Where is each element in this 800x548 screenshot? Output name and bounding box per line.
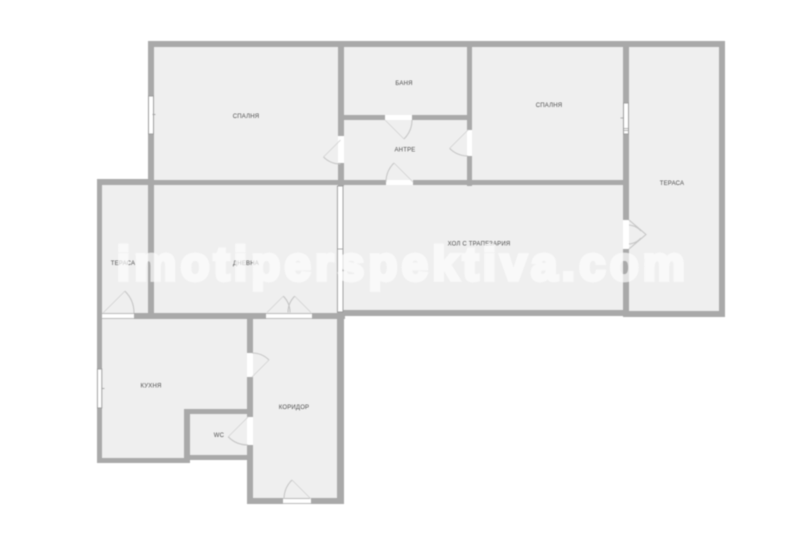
svg-text:СПАЛНЯ: СПАЛНЯ	[536, 103, 563, 109]
svg-text:КОРИДОР: КОРИДОР	[279, 405, 310, 411]
svg-text:ТЕРАСА: ТЕРАСА	[660, 181, 685, 187]
svg-text:АНТРЕ: АНТРЕ	[394, 148, 415, 154]
svg-text:КУХНЯ: КУХНЯ	[140, 384, 161, 390]
svg-text:БАНЯ: БАНЯ	[395, 81, 412, 87]
svg-text:СПАЛНЯ: СПАЛНЯ	[233, 114, 260, 120]
svg-text:WC: WC	[214, 433, 225, 439]
svg-text:imotiperspektiva.com: imotiperspektiva.com	[117, 237, 689, 290]
